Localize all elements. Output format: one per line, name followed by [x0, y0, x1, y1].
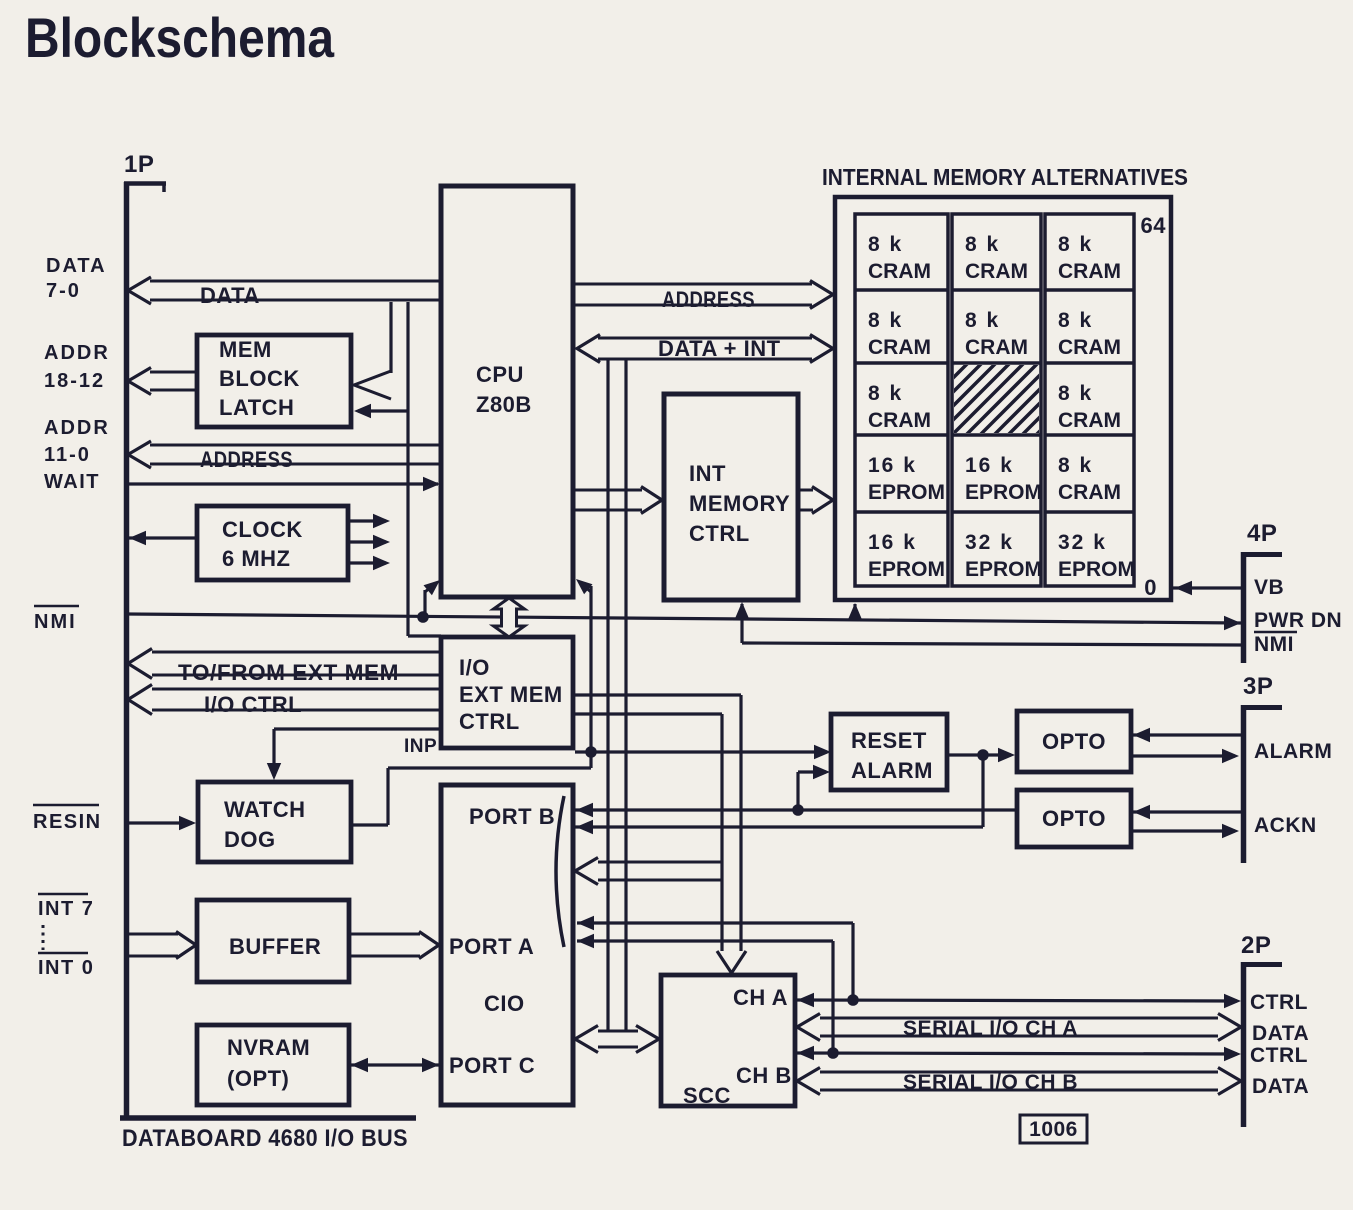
svg-text:Z80B: Z80B — [476, 392, 532, 417]
svg-text:ADDR: ADDR — [44, 342, 110, 364]
svg-text:SCC: SCC — [683, 1083, 731, 1108]
svg-text:MEMORY: MEMORY — [689, 491, 790, 516]
svg-text:16 k: 16 k — [868, 454, 917, 477]
svg-text:BUFFER: BUFFER — [229, 934, 321, 959]
svg-text:NMI: NMI — [1254, 633, 1294, 656]
svg-text:DATA: DATA — [200, 283, 260, 308]
svg-text:INT: INT — [689, 461, 726, 486]
svg-text:CRAM: CRAM — [868, 409, 931, 432]
svg-text:8 k: 8 k — [1058, 454, 1093, 477]
svg-text:CIO: CIO — [484, 991, 525, 1016]
svg-text:DATA + INT: DATA + INT — [658, 336, 781, 361]
svg-text:OPTO: OPTO — [1042, 729, 1106, 754]
svg-text:7-0: 7-0 — [46, 280, 81, 302]
svg-text:NVRAM: NVRAM — [227, 1035, 310, 1060]
svg-text:CRAM: CRAM — [868, 336, 931, 359]
svg-text:INT 0: INT 0 — [38, 957, 94, 979]
svg-text:EPROM: EPROM — [868, 481, 945, 504]
svg-text:BLOCK: BLOCK — [219, 366, 300, 391]
svg-text:8 k: 8 k — [868, 382, 903, 405]
svg-text:ACKN: ACKN — [1254, 814, 1317, 837]
svg-text:PORT C: PORT C — [449, 1053, 535, 1078]
svg-text:ADDR: ADDR — [44, 417, 110, 439]
svg-text:8 k: 8 k — [965, 309, 1000, 332]
svg-text:INT 7: INT 7 — [38, 898, 94, 920]
svg-text:1P: 1P — [124, 151, 154, 178]
svg-text:WATCH: WATCH — [224, 797, 306, 822]
svg-text:ALARM: ALARM — [851, 758, 933, 783]
svg-text:DATA: DATA — [1252, 1022, 1309, 1045]
svg-text:MEM: MEM — [219, 337, 272, 362]
svg-text:DATA: DATA — [1252, 1075, 1309, 1098]
svg-text:8 k: 8 k — [868, 309, 903, 332]
svg-text:CRAM: CRAM — [1058, 336, 1121, 359]
svg-text:16 k: 16 k — [868, 531, 917, 554]
svg-text:8 k: 8 k — [1058, 382, 1093, 405]
svg-text:I/O CTRL: I/O CTRL — [204, 692, 302, 717]
svg-text:CRAM: CRAM — [1058, 481, 1121, 504]
svg-text:8 k: 8 k — [1058, 233, 1093, 256]
svg-text:INP: INP — [404, 736, 437, 757]
svg-text:WAIT: WAIT — [44, 471, 100, 493]
svg-text:Blockschema: Blockschema — [25, 6, 335, 69]
svg-text:CTRL: CTRL — [459, 709, 520, 734]
svg-text:EPROM: EPROM — [965, 481, 1042, 504]
svg-text:4P: 4P — [1247, 520, 1277, 547]
svg-text:64: 64 — [1141, 213, 1167, 238]
svg-text:DATA: DATA — [46, 255, 107, 277]
svg-text:I/O: I/O — [459, 655, 490, 680]
svg-text:0: 0 — [1144, 575, 1157, 600]
svg-text:OPTO: OPTO — [1042, 806, 1106, 831]
svg-text:INTERNAL MEMORY ALTERNATIVES: INTERNAL MEMORY ALTERNATIVES — [822, 164, 1188, 190]
svg-text:2P: 2P — [1241, 932, 1271, 959]
svg-text:CH A: CH A — [733, 985, 788, 1010]
svg-text:ADDRESS: ADDRESS — [200, 447, 293, 472]
svg-text:CLOCK: CLOCK — [222, 517, 303, 542]
svg-text:CRAM: CRAM — [965, 336, 1028, 359]
svg-text:CRAM: CRAM — [1058, 409, 1121, 432]
svg-text:3P: 3P — [1243, 673, 1273, 700]
svg-text:8 k: 8 k — [965, 233, 1000, 256]
svg-text:8 k: 8 k — [868, 233, 903, 256]
svg-text:EXT MEM: EXT MEM — [459, 682, 563, 707]
svg-text:CH B: CH B — [736, 1063, 792, 1088]
svg-text:(OPT): (OPT) — [227, 1066, 289, 1091]
svg-text:CRAM: CRAM — [965, 260, 1028, 283]
svg-text:CRAM: CRAM — [868, 260, 931, 283]
svg-text:ADDRESS: ADDRESS — [662, 287, 755, 312]
svg-text:PWR DN: PWR DN — [1254, 609, 1342, 632]
svg-text:PORT B: PORT B — [469, 804, 555, 829]
svg-text:LATCH: LATCH — [219, 395, 294, 420]
svg-text:8 k: 8 k — [1058, 309, 1093, 332]
svg-text:CTRL: CTRL — [689, 521, 750, 546]
svg-text:TO/FROM EXT MEM: TO/FROM EXT MEM — [178, 660, 399, 685]
svg-text:RESIN: RESIN — [33, 811, 102, 833]
svg-text:DATABOARD 4680 I/O BUS: DATABOARD 4680 I/O BUS — [122, 1125, 408, 1152]
svg-text:1006: 1006 — [1029, 1118, 1078, 1141]
svg-text:18-12: 18-12 — [44, 370, 105, 392]
svg-text:SERIAL I/O CH A: SERIAL I/O CH A — [903, 1017, 1078, 1040]
svg-text:EPROM: EPROM — [868, 558, 945, 581]
svg-text:CRAM: CRAM — [1058, 260, 1121, 283]
svg-text:32 k: 32 k — [965, 531, 1014, 554]
svg-text:CTRL: CTRL — [1250, 1044, 1308, 1067]
svg-text:VB: VB — [1254, 576, 1284, 599]
svg-text:EPROM: EPROM — [1058, 558, 1135, 581]
svg-text:PORT A: PORT A — [449, 934, 534, 959]
svg-text:SERIAL I/O CH B: SERIAL I/O CH B — [903, 1071, 1078, 1094]
svg-text:ALARM: ALARM — [1254, 740, 1332, 763]
svg-text:RESET: RESET — [851, 728, 927, 753]
svg-text:CPU: CPU — [476, 362, 524, 387]
svg-text:6 MHZ: 6 MHZ — [222, 546, 291, 571]
svg-text:DOG: DOG — [224, 827, 276, 852]
svg-text:11-0: 11-0 — [44, 444, 91, 466]
svg-text:NMI: NMI — [34, 611, 77, 633]
svg-text:EPROM: EPROM — [965, 558, 1042, 581]
svg-text:32 k: 32 k — [1058, 531, 1107, 554]
svg-text:16 k: 16 k — [965, 454, 1014, 477]
svg-text:CTRL: CTRL — [1250, 991, 1308, 1014]
